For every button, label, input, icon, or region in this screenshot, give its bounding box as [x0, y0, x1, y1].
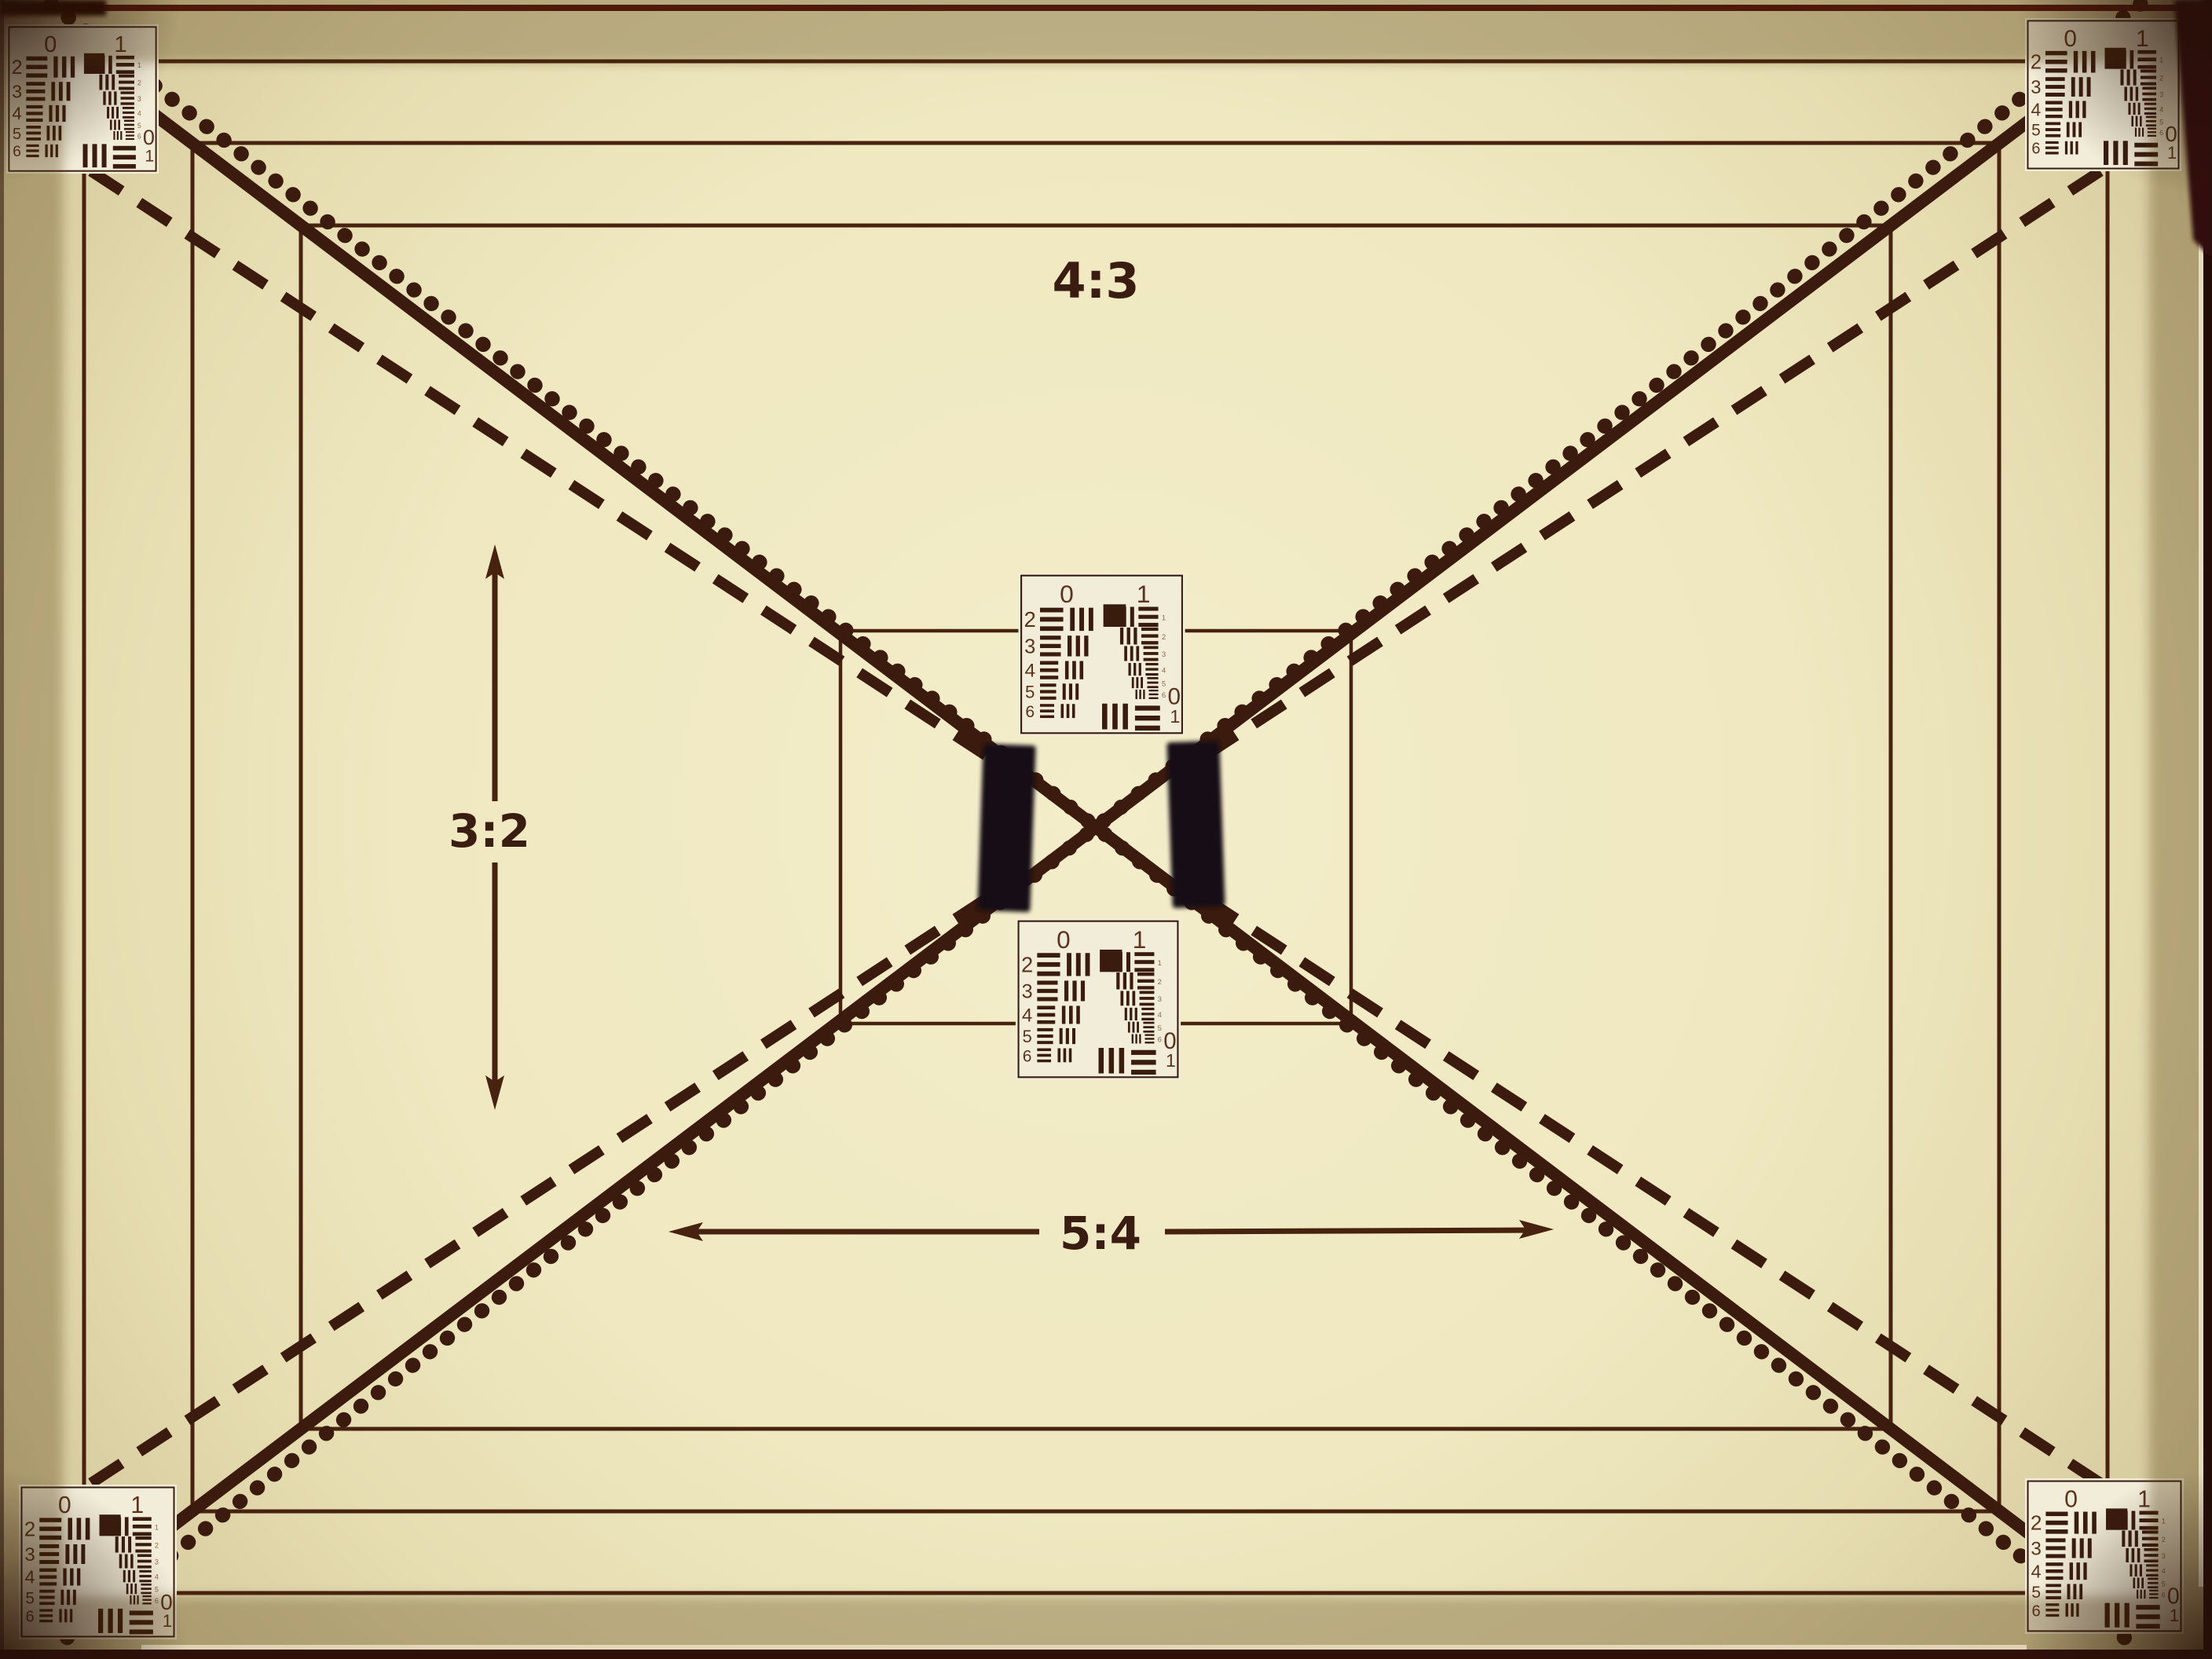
usaf-target-center-lower — [1016, 918, 1181, 1080]
ratio-label-5-4: 5:4 — [1060, 1207, 1141, 1260]
ratio-label-4-3: 4:3 — [1052, 252, 1139, 309]
arrow-5-4-right-shaft — [1165, 1230, 1536, 1232]
usaf-target-center-upper — [1018, 573, 1185, 736]
velvet-patch-left — [977, 744, 1035, 912]
paper-edge-top-line — [24, 5, 2188, 11]
photographed-test-chart: 0 1 2 3 4 5 6 1 2 — [0, 0, 2212, 1659]
paper-edge-right-highlight — [2199, 204, 2203, 1587]
velvet-patch-right — [1166, 741, 1225, 908]
photo-edge-left — [0, 0, 4, 1659]
ratio-label-3-2: 3:2 — [449, 804, 530, 858]
test-chart-scene: 0 1 2 3 4 5 6 1 2 — [0, 0, 2212, 1659]
photo-edge-bottom — [0, 1650, 2212, 1659]
paper-edge-bottom-highlight — [141, 1645, 2027, 1650]
